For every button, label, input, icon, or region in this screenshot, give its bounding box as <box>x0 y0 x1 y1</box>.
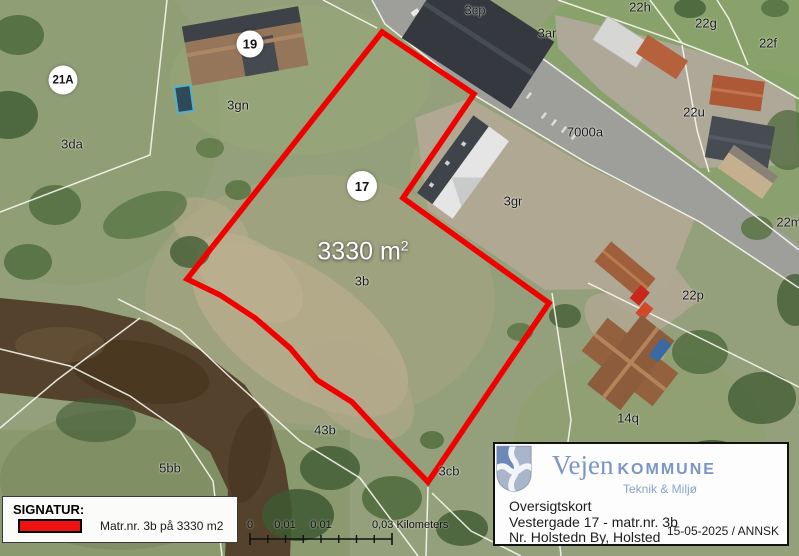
parcel-label-3gn: 3gn <box>227 98 249 113</box>
infobox: VejenKOMMUNE Teknik & Miljø Oversigtskor… <box>493 442 789 546</box>
district-line: Nr. Holstedn By, Holsted <box>509 530 678 546</box>
parcel-label-14q: 14q <box>617 411 639 426</box>
department-label: Teknik & Miljø <box>605 482 715 496</box>
legend-row: Matr.nr. 3b på 3330 m2 <box>18 519 237 533</box>
parcel-label-3gr: 3gr <box>504 194 523 209</box>
parcel-label-22m: 22m <box>776 215 799 230</box>
municipality-name: Vejen <box>552 450 613 480</box>
parcel-label-22g: 22g <box>695 16 717 31</box>
municipality-brand: VejenKOMMUNE <box>552 450 716 481</box>
map-canvas: 3cp 3ar 22h 22g 22f 7000a 22u 22m 22p 3g… <box>0 0 799 556</box>
scale-tick-label-1: 0,01 <box>274 519 295 531</box>
address-badge-21a: 21A <box>49 66 78 95</box>
scale-bar-ruler <box>244 533 459 545</box>
map-description: Oversigtskort Vestergade 17 - matr.nr. 3… <box>509 499 678 546</box>
address-badge-17: 17 <box>347 171 377 201</box>
pool <box>174 85 193 113</box>
area-value: 3330 m <box>317 238 400 266</box>
parcel-label-3cb: 3cb <box>439 464 460 479</box>
parcel-label-43b: 43b <box>314 423 336 438</box>
address-line: Vestergade 17 - matr.nr. 3b <box>509 515 678 531</box>
parcel-label-22p: 22p <box>682 288 704 303</box>
parcel-label-3ar: 3ar <box>538 26 557 41</box>
scale-tick-label-2: 0,01 <box>310 519 331 531</box>
scale-end-label: 0,03 Kilometers <box>372 519 448 531</box>
parcel-label-3cp: 3cp <box>465 3 486 18</box>
municipality-suffix: KOMMUNE <box>617 461 715 478</box>
parcel-label-22f: 22f <box>759 36 777 51</box>
vejen-coat-of-arms-icon <box>495 444 533 494</box>
address-badge-19: 19 <box>237 31 264 58</box>
parcel-label-5bb: 5bb <box>159 461 181 476</box>
legend-entry-text: Matr.nr. 3b på 3330 m2 <box>100 519 223 533</box>
legend-swatch-red <box>18 519 82 533</box>
date-author: 15-05-2025 / ANNSK <box>667 524 779 538</box>
parcel-label-3b: 3b <box>355 274 369 289</box>
area-label: 3330 m2 <box>317 237 408 266</box>
parcel-label-3da: 3da <box>61 137 83 152</box>
scale-bar: 0 0,01 0,01 0,03 Kilometers <box>244 519 459 547</box>
parcel-label-22u: 22u <box>683 105 705 120</box>
parcel-label-7000a: 7000a <box>567 125 603 140</box>
map-type-line: Oversigtskort <box>509 499 678 515</box>
scale-tick-label-0: 0 <box>247 519 253 531</box>
area-superscript: 2 <box>401 237 409 253</box>
parcel-label-22h: 22h <box>629 0 651 15</box>
legend-title: SIGNATUR: <box>13 502 237 517</box>
legend-box: SIGNATUR: Matr.nr. 3b på 3330 m2 <box>2 496 238 543</box>
